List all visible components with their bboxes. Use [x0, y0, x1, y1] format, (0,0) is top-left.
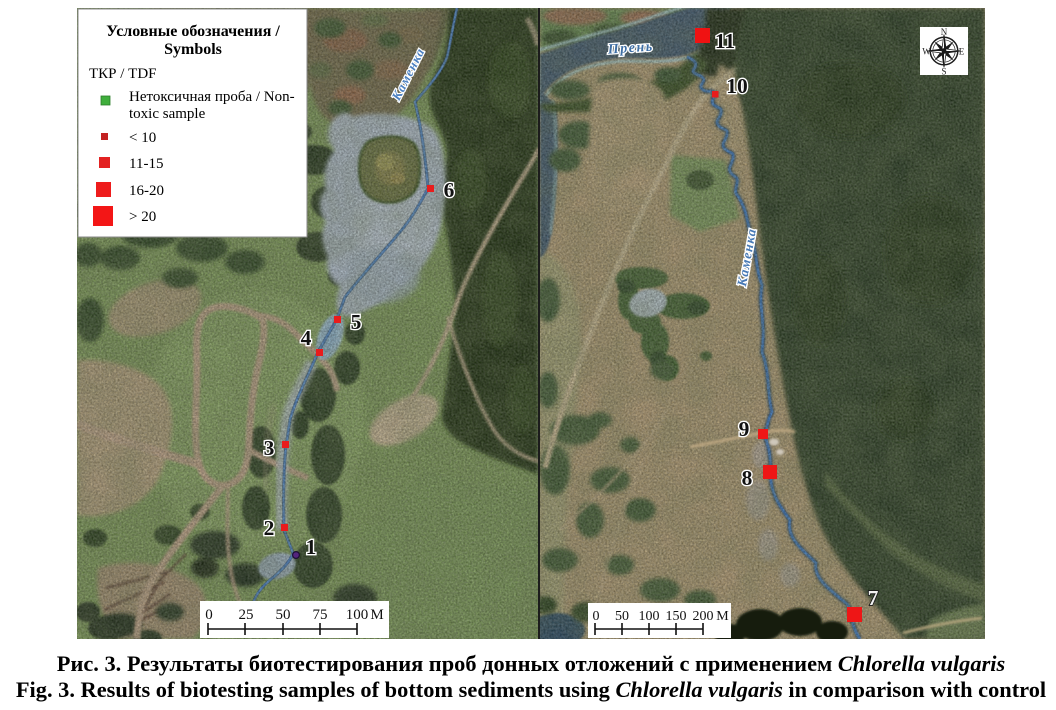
svg-text:25: 25 — [239, 607, 254, 623]
svg-text:W: W — [922, 46, 931, 56]
svg-text:100: 100 — [346, 607, 369, 623]
svg-text:9: 9 — [739, 417, 750, 441]
svg-text:Symbols: Symbols — [164, 41, 222, 58]
svg-text:0: 0 — [593, 609, 600, 624]
svg-text:S: S — [941, 67, 946, 77]
svg-text:М: М — [370, 607, 383, 623]
svg-text:100: 100 — [639, 609, 660, 624]
svg-text:E: E — [959, 46, 965, 56]
svg-text:7: 7 — [868, 586, 879, 610]
svg-text:N: N — [941, 27, 948, 37]
svg-text:8: 8 — [742, 466, 753, 490]
svg-text:11-15: 11-15 — [129, 156, 163, 172]
svg-text:0: 0 — [205, 607, 213, 623]
svg-text:50: 50 — [615, 609, 629, 624]
svg-text:2: 2 — [264, 516, 275, 540]
svg-text:5: 5 — [351, 310, 362, 334]
svg-text:3: 3 — [264, 436, 275, 460]
svg-text:ТКР / TDF: ТКР / TDF — [89, 66, 157, 82]
svg-text:Рис. 3. Результаты биотестиров: Рис. 3. Результаты биотестирования проб … — [57, 651, 1006, 676]
svg-text:toxic sample: toxic sample — [129, 106, 206, 122]
svg-text:Нетоксичная проба / Non-: Нетоксичная проба / Non- — [129, 89, 295, 105]
svg-text:16-20: 16-20 — [129, 183, 164, 199]
svg-text:< 10: < 10 — [129, 130, 156, 146]
svg-text:> 20: > 20 — [129, 209, 156, 225]
svg-text:1: 1 — [306, 535, 317, 559]
svg-text:11: 11 — [715, 29, 735, 53]
svg-text:4: 4 — [301, 326, 312, 350]
svg-text:6: 6 — [444, 178, 455, 202]
svg-text:М: М — [716, 609, 729, 624]
svg-text:150: 150 — [666, 609, 687, 624]
svg-text:Условные обозначения /: Условные обозначения / — [106, 23, 280, 40]
svg-text:200: 200 — [693, 609, 714, 624]
svg-text:10: 10 — [726, 74, 748, 98]
svg-text:Fig. 3. Results of biotesting: Fig. 3. Results of biotesting samples of… — [16, 677, 1046, 702]
svg-text:50: 50 — [276, 607, 291, 623]
svg-text:75: 75 — [313, 607, 328, 623]
